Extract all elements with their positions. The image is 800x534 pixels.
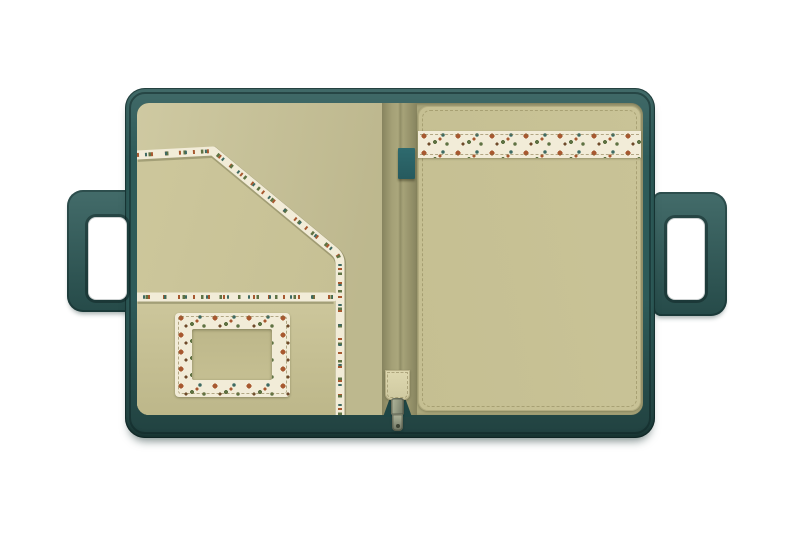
zipper-slider bbox=[391, 398, 404, 415]
card-window-frame bbox=[175, 313, 290, 397]
zipper-pull-tab bbox=[392, 414, 403, 431]
zipper-strap-stitching bbox=[387, 372, 408, 398]
floral-trim-band bbox=[418, 131, 641, 158]
zipper-pull-hole bbox=[396, 424, 400, 428]
card-window bbox=[192, 329, 272, 380]
right-handle-grip-hole bbox=[667, 218, 705, 300]
product-photo bbox=[0, 0, 800, 534]
zipper-base-strap bbox=[385, 370, 410, 400]
right-carry-handle bbox=[653, 192, 727, 316]
interior-lining bbox=[137, 103, 643, 415]
folio-shell bbox=[125, 88, 655, 438]
left-handle-grip-hole bbox=[88, 217, 127, 300]
floral-band-stitching bbox=[420, 134, 639, 155]
spine-pen-tab bbox=[398, 148, 415, 179]
